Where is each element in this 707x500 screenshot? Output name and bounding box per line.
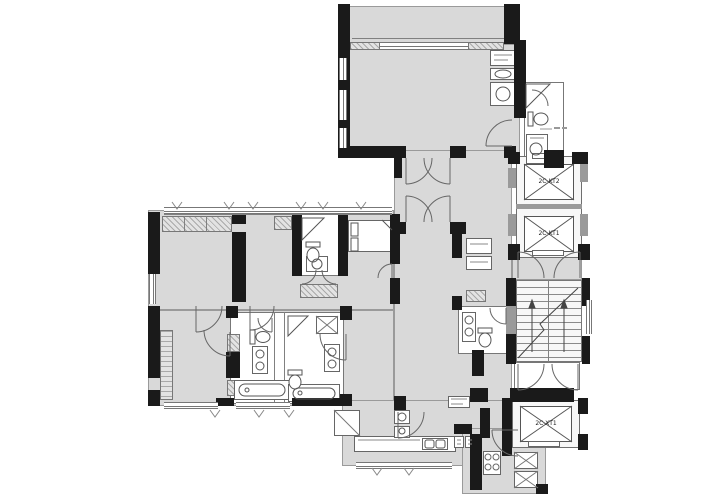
sink-cabinet — [490, 82, 516, 106]
wall-segment — [394, 158, 402, 178]
elevator-label-kt2: 2C-KT2 — [524, 177, 574, 187]
wall-segment — [472, 350, 484, 376]
cabinet — [490, 50, 516, 66]
wall-segment — [572, 152, 588, 164]
appliance-box — [454, 436, 464, 448]
kitchen-sink — [422, 438, 448, 450]
window — [586, 300, 592, 334]
wall-segment — [470, 434, 482, 490]
wardrobe-divider — [206, 216, 207, 232]
wardrobe — [300, 284, 338, 298]
balcony-rail-line — [352, 38, 512, 39]
cabinet — [466, 256, 492, 270]
wall-segment — [578, 398, 588, 414]
wall-segment — [514, 40, 526, 118]
washer — [316, 316, 338, 334]
wall-segment — [390, 278, 400, 304]
wall-segment — [452, 296, 462, 310]
bed — [348, 220, 392, 252]
window — [149, 274, 156, 304]
wall-segment — [232, 214, 246, 224]
wall-segment — [394, 396, 406, 410]
stair-vestibule — [514, 362, 580, 390]
wall-line — [164, 214, 392, 215]
window — [380, 42, 468, 50]
cabinet — [394, 410, 410, 424]
wardrobe — [162, 216, 232, 232]
elevator-door — [532, 250, 564, 256]
window — [164, 207, 392, 214]
staircase — [516, 280, 582, 362]
wall-segment — [508, 244, 520, 260]
shaft-divider — [516, 204, 582, 209]
window — [339, 90, 347, 120]
wall-segment — [226, 352, 240, 378]
floor-plan-canvas: 2C-KT2 2C-KT1 2C-XT1 — [0, 0, 707, 500]
elevator-label-kt1: 2C-KT1 — [524, 229, 574, 239]
cabinet — [394, 426, 410, 438]
wall-segment — [216, 398, 234, 406]
wall-segment — [292, 398, 346, 406]
wall-stub — [390, 146, 406, 158]
washer — [514, 452, 538, 469]
stove — [483, 451, 501, 475]
central-hall — [394, 150, 512, 404]
wardrobe-divider — [184, 216, 185, 232]
window — [339, 128, 347, 148]
wall-segment — [340, 394, 352, 406]
wall-segment — [390, 214, 400, 264]
wall-segment — [536, 484, 548, 494]
wall-hatch — [468, 42, 504, 50]
wall-segment — [232, 232, 246, 302]
window — [236, 402, 290, 409]
wall-segment — [338, 4, 350, 44]
wall-segment — [510, 388, 574, 402]
wall-segment — [578, 244, 590, 260]
window — [356, 462, 452, 469]
wall-segment — [506, 278, 516, 306]
elevator-label-xt1: 2C-XT1 — [520, 419, 572, 429]
shear-wall — [508, 214, 516, 236]
wall-segment — [544, 150, 564, 168]
window — [164, 402, 218, 409]
cabinet — [466, 238, 492, 254]
wall-segment — [226, 306, 238, 318]
appliance-box — [448, 396, 470, 408]
wall-stub — [450, 146, 466, 158]
shear-wall — [508, 168, 516, 188]
wall-segment — [338, 214, 348, 276]
wall-segment — [292, 214, 302, 276]
wall-segment — [148, 322, 160, 378]
wall-segment — [340, 306, 352, 320]
wall-segment — [454, 424, 472, 434]
bathtub — [234, 380, 290, 400]
wall-segment — [148, 212, 160, 274]
wall-segment — [582, 336, 590, 364]
fridge — [334, 410, 360, 436]
shear-wall — [506, 306, 516, 334]
cabinet-hatch — [466, 290, 486, 302]
closet — [227, 334, 240, 352]
wall-segment — [506, 334, 516, 364]
sink-cabinet — [490, 68, 516, 80]
shear-wall — [580, 164, 588, 182]
wall-segment — [504, 4, 520, 44]
window — [339, 58, 347, 80]
wall-hatch — [350, 42, 380, 50]
elevator-lobby — [512, 256, 582, 280]
vanity — [306, 256, 328, 272]
washer — [514, 471, 538, 488]
wall-segment — [502, 398, 512, 456]
elevator-door — [528, 441, 560, 447]
wall-segment — [148, 390, 160, 406]
vanity — [324, 344, 340, 372]
wall-segment — [508, 152, 520, 164]
wardrobe — [274, 216, 292, 230]
wall-segment — [470, 388, 488, 402]
wardrobe — [160, 330, 173, 400]
shear-wall — [580, 214, 588, 236]
wall-segment — [452, 228, 462, 258]
wall-segment — [578, 434, 588, 450]
vanity — [252, 346, 268, 374]
vanity — [462, 312, 476, 342]
stair-divider-line — [548, 280, 549, 362]
